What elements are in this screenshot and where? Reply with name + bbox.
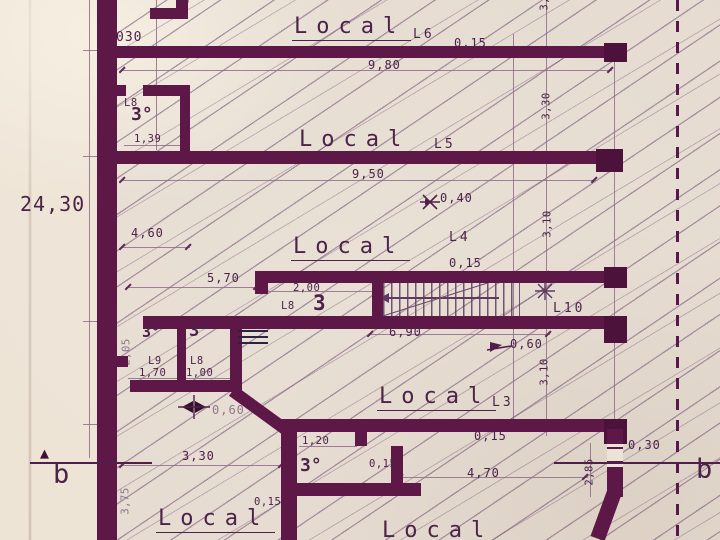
room-code-l10: L10: [553, 301, 585, 316]
wall-end-block: [596, 149, 623, 172]
dimension-label: 4,70: [467, 466, 500, 480]
dimension-label: 9,80: [368, 58, 401, 72]
bathroom-label: 3°: [142, 323, 160, 341]
stairs: [383, 280, 520, 317]
room-code-l9: L9: [148, 355, 162, 367]
dimension-label: 3,40: [539, 0, 551, 11]
wall-local-l3: [290, 419, 608, 432]
dimension-line: [122, 465, 284, 466]
dimension-label: 3,10: [539, 358, 551, 385]
floor-plan: L6 030 Local L6 0,15 9,80 3,40 L8 3° 1,3…: [0, 0, 720, 540]
dimension-label: 5,70: [207, 271, 240, 285]
section-marker-b-left: b: [53, 459, 69, 490]
bathroom-label: 3°: [189, 321, 209, 341]
wall-local-l6: [117, 46, 613, 58]
wall-end-block: [604, 316, 627, 343]
level-flag-marker-icon: [486, 336, 512, 360]
bathroom-label: 3: [313, 291, 326, 315]
wall-bathroom-right: [180, 85, 190, 157]
dimension-line: [122, 70, 612, 71]
dimension-line: [614, 60, 615, 420]
wall-vertical-bottom: [281, 419, 297, 540]
wall-segment: [117, 85, 126, 96]
star-marker-icon: [534, 280, 556, 302]
dimension-label: 1,39: [134, 133, 161, 145]
dimension-label: 0,15: [369, 458, 396, 470]
dimension-line: [513, 34, 514, 432]
dimension-label: 0,15: [454, 36, 487, 50]
dimension-label: 1,00: [186, 367, 213, 379]
room-code-partial: L6: [176, 0, 190, 7]
wall-bath-bottom: [130, 380, 242, 392]
wall-bath-partition: [177, 329, 186, 382]
window-line: [607, 447, 623, 449]
wall-main-left: [97, 0, 117, 540]
wall-bath-bottom2: [293, 483, 421, 496]
water-level-icon: [238, 330, 268, 346]
boundary-dashed-line: [676, 0, 679, 540]
bathroom-label: 3°: [300, 455, 322, 476]
dimension-label: 9,50: [352, 167, 385, 181]
dimension-line: [122, 247, 190, 248]
dimension-line: [89, 0, 90, 458]
room-label-local-l6: Local: [292, 14, 411, 41]
room-label-local-l5: Local: [297, 127, 416, 154]
overall-dimension: 24,30: [20, 192, 85, 216]
room-code-l8: L8: [281, 300, 295, 312]
section-marker-b-right: b: [696, 454, 712, 485]
room-code-l5: L5: [434, 137, 456, 152]
dimension-label: 4,60: [131, 226, 164, 240]
dimension-label: 2,05: [121, 338, 133, 365]
section-line-left: [30, 462, 152, 464]
dimension-label: 3,10: [542, 210, 554, 237]
wall-end-block: [604, 267, 627, 288]
dimension-label: 0,15: [449, 256, 482, 270]
dimension-label: 0,15: [474, 429, 507, 443]
room-label-local-l3: Local: [377, 384, 496, 411]
wall-end-block: [604, 43, 627, 62]
section-arrow-icon: ▲: [40, 444, 49, 462]
dimension-line: [124, 145, 182, 146]
room-code-l8: L8: [190, 355, 204, 367]
dimension-label: 1,20: [302, 435, 329, 447]
dimension-label: 1,70: [139, 367, 166, 379]
dimension-label: 6,90: [389, 325, 422, 339]
dimension-label: 3,30: [182, 449, 215, 463]
wall-stub: [355, 424, 367, 446]
room-label-local-l4: Local: [291, 234, 410, 261]
dimension-label: 030: [116, 30, 142, 45]
dimension-label: 0,60: [212, 403, 245, 417]
dimension-label: 3,75: [120, 487, 132, 514]
star-marker-icon: [418, 190, 442, 214]
dimension-line: [126, 287, 258, 288]
bathroom-label: 3°: [131, 104, 153, 125]
dimension-label: 3,30: [541, 92, 553, 119]
wall-bath-right: [230, 316, 242, 387]
dimension-line: [156, 0, 157, 150]
benchmark-marker-icon: [178, 394, 210, 420]
wall-stair-bottom: [143, 316, 609, 329]
dimension-label: 2,85: [584, 458, 596, 485]
wall-right: [607, 429, 623, 444]
dimension-label: 0,40: [440, 191, 473, 205]
room-code-l4: L4: [449, 230, 471, 245]
dimension-label: 0,30: [628, 438, 661, 452]
wall-stub: [255, 271, 268, 294]
room-label-local: Local: [156, 506, 275, 533]
dimension-label: 0,60: [510, 337, 543, 351]
room-label-local: Local: [380, 518, 499, 540]
room-code-l3: L3: [492, 395, 514, 410]
room-code-l6: L6: [413, 27, 435, 42]
